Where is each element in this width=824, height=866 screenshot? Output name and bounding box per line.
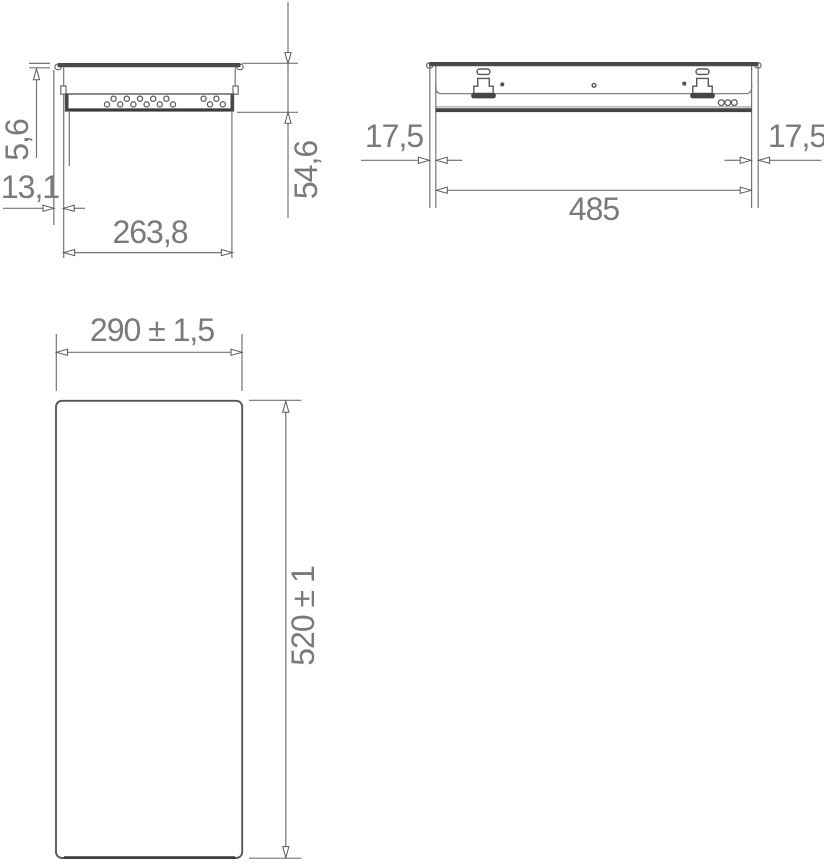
arrowhead [57,349,68,355]
arrowhead [231,349,242,355]
arrowhead [283,847,289,858]
center-hole [592,83,596,87]
dim-body-width-label: 263,8 [112,216,187,248]
dim-cutout-width-label: 485 [569,193,619,225]
hole [718,100,724,106]
dim-left-margin-label: 17,5 [365,120,423,152]
hole [144,102,149,107]
hanger-bracket-left [474,78,493,92]
hole [151,96,156,101]
perforated-bar-right-cap [231,95,234,112]
hole [104,102,109,107]
wall-step-left [61,86,66,94]
technical-drawing-canvas: 5,6 13,1 263,8 54,6 17,5 485 17,5 290 ± … [0,0,824,866]
hole [170,102,175,107]
hole [164,96,169,101]
screw-dot-left [500,82,504,86]
dim-right-margin-label: 17,5 [768,120,824,152]
dim-flange-overhang-label: 13,1 [1,171,59,203]
hole [118,102,123,107]
arrowhead [740,187,751,193]
screw-dot-right [682,82,686,86]
arrowhead [63,205,74,211]
dim-plan-height-label: 520 ± 1 [287,566,319,666]
wall-step-right [233,86,238,94]
hole [157,102,162,107]
arrowhead [759,157,770,163]
hole [124,96,129,101]
cutout-rectangle [56,401,242,858]
hole [207,102,212,107]
arrowhead [283,401,289,412]
arrowhead [221,250,232,256]
hanger-bracket-right [693,78,712,92]
arrowhead [285,53,291,64]
dim-plan-width-label: 290 ± 1,5 [90,314,214,346]
hole [137,96,142,101]
arrowhead [740,157,751,163]
hanger-slot-right [696,69,709,74]
arrowhead [33,69,39,80]
arrowhead [418,157,429,163]
hole [131,102,136,107]
plan-cutout-view [56,334,302,858]
rail-dark-band [436,108,752,112]
hole [725,100,731,106]
arrowhead [64,250,75,256]
dim-flange-thickness-label: 5,6 [1,119,33,160]
arrowhead [285,112,291,123]
hole [220,102,225,107]
hole [201,96,206,101]
hanger-base-right [690,93,715,99]
arrowhead [436,157,447,163]
perforated-bar-left-cap [66,95,69,112]
hanger-slot-left [477,69,490,74]
vent-holes [718,100,737,106]
front-elevation-view [361,62,822,208]
arrowhead [436,187,447,193]
hole [111,96,116,101]
top-flange [429,62,759,66]
hanger-base-left [471,93,496,99]
arrowhead [43,205,54,211]
hole [731,100,737,106]
dim-recess-depth-label: 54,6 [290,141,322,199]
hole [214,96,219,101]
top-flange [58,63,241,67]
